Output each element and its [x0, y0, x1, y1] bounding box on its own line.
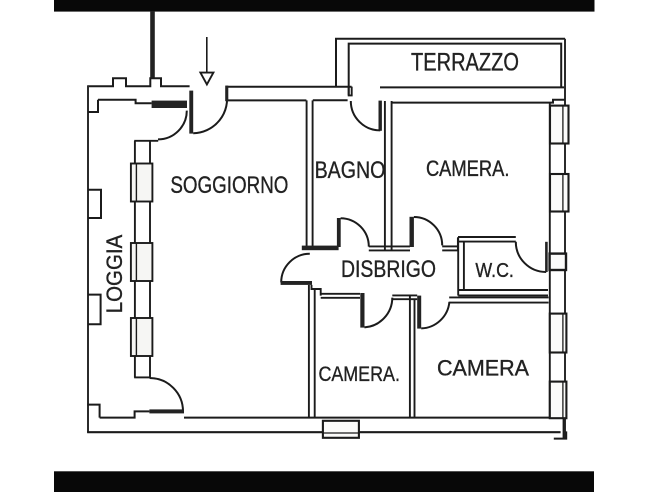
svg-text:BAGNO: BAGNO [315, 157, 386, 184]
svg-text:CAMERA.: CAMERA. [318, 362, 400, 386]
svg-text:TERRAZZO: TERRAZZO [411, 49, 519, 77]
svg-text:SOGGIORNO: SOGGIORNO [170, 172, 288, 199]
svg-text:CAMERA.: CAMERA. [426, 156, 510, 181]
svg-text:CAMERA: CAMERA [437, 356, 529, 381]
svg-text:LOGGIA: LOGGIA [102, 234, 127, 313]
svg-text:W.C.: W.C. [475, 259, 514, 282]
svg-text:DISBRIGO: DISBRIGO [341, 256, 436, 283]
